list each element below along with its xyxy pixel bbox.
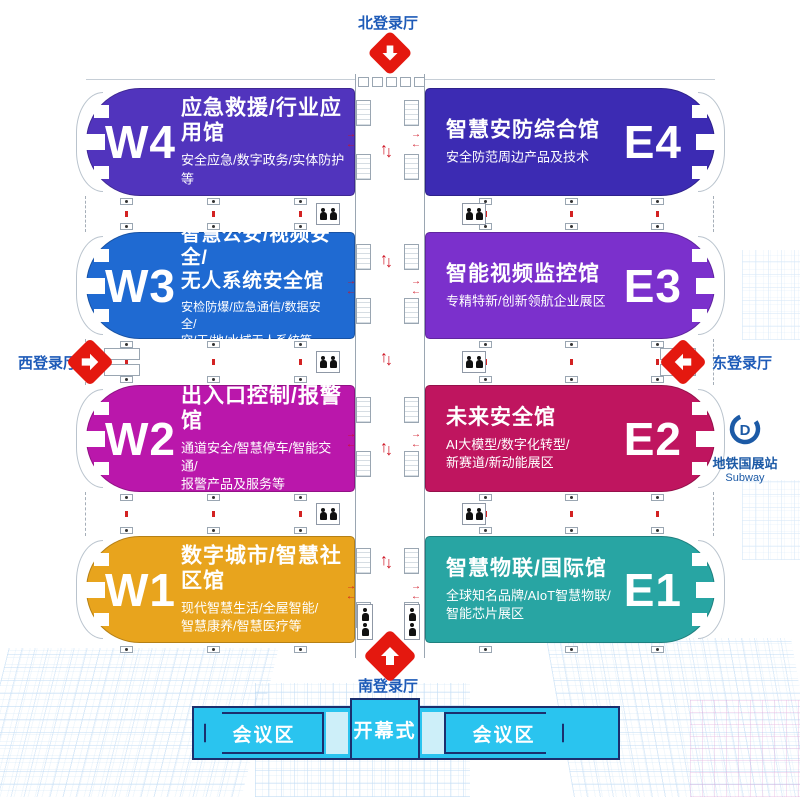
door-icon	[294, 494, 307, 501]
subway-name: 地铁国展站	[706, 453, 784, 472]
north-wall	[86, 79, 355, 88]
city-pattern-decoration	[742, 480, 800, 560]
restroom-icon	[316, 503, 340, 525]
person-icon	[466, 208, 473, 221]
marker-icon	[299, 359, 302, 365]
door-icon	[565, 527, 578, 534]
hall-title: 智慧物联/国际馆	[446, 556, 614, 581]
marker-icon	[299, 211, 302, 217]
hall-desc: 全球知名品牌/AIoT智慧物联/ 智能芯片展区	[446, 587, 614, 623]
person-icon	[476, 208, 483, 221]
hall-W4: W4 应急救援/行业应用馆 安全应急/数字政务/实体防护等	[86, 88, 355, 196]
person-icon	[320, 508, 327, 521]
door-icon	[479, 376, 492, 383]
conference-gap	[422, 712, 444, 754]
door-icon	[294, 198, 307, 205]
stairs-icon	[404, 100, 419, 126]
door-icon	[207, 376, 220, 383]
opening-ceremony-area: 开幕式	[350, 698, 420, 760]
subway-name-en: Subway	[706, 472, 784, 484]
hall-E2: E2 未来安全馆 AI大模型/数字化转型/ 新赛道/新动能展区	[425, 385, 715, 492]
door-notch	[84, 431, 105, 447]
marker-icon	[656, 359, 659, 365]
door-notch	[692, 402, 707, 415]
stairs-icon	[356, 100, 371, 126]
door-icon	[294, 527, 307, 534]
person-icon	[409, 608, 416, 621]
leftright-flow-icon: →←	[411, 277, 420, 297]
person-icon	[330, 208, 337, 221]
door-icon	[565, 341, 578, 348]
building-outline	[713, 492, 714, 536]
hall-code: W1	[105, 563, 176, 617]
person-icon	[320, 356, 327, 369]
conference-area-right: 会议区	[444, 712, 564, 754]
door-notch	[84, 134, 105, 150]
north-wall	[425, 79, 715, 88]
hall-title: 未来安全馆	[446, 405, 614, 430]
leftright-flow-icon: →←	[346, 130, 355, 150]
door-icon	[207, 341, 220, 348]
stairs-icon	[356, 397, 371, 423]
east-entrance-label: 东登录厅	[712, 352, 772, 373]
hall-W2: W2 出入口控制/报警馆 通道安全/智慧停车/智能交通/ 报警产品及服务等	[86, 385, 355, 492]
person-icon	[466, 356, 473, 369]
building-outline	[713, 196, 714, 232]
door-notch	[696, 582, 717, 598]
marker-icon	[656, 211, 659, 217]
hall-code: E3	[624, 259, 682, 313]
person-icon	[330, 508, 337, 521]
hall-code: E2	[624, 412, 682, 466]
door-notch	[84, 278, 105, 294]
restroom-icon	[404, 604, 420, 640]
door-icon	[207, 198, 220, 205]
person-icon	[320, 208, 327, 221]
restroom-icon	[462, 351, 486, 373]
stairs-icon	[356, 298, 371, 324]
hall-E3: E3 智能视频监控馆 专精特新/创新领航企业展区	[425, 232, 715, 339]
door-icon	[120, 527, 133, 534]
door-icon	[651, 527, 664, 534]
wall-structure	[358, 77, 369, 87]
hall-E4: E4 智慧安防综合馆 安全防范周边产品及技术	[425, 88, 715, 196]
stairs-icon	[404, 154, 419, 180]
west-entrance-icon	[66, 338, 114, 386]
leftright-flow-icon: →←	[411, 582, 420, 602]
hall-title: 应急救援/行业应用馆	[181, 96, 346, 146]
door-icon	[120, 494, 133, 501]
hall-title: 数字城市/智慧社区馆	[181, 543, 346, 593]
door-icon	[479, 494, 492, 501]
updown-flow-icon: ↑↓	[380, 350, 390, 366]
marker-icon	[570, 511, 573, 517]
hall-W1: W1 数字城市/智慧社区馆 现代智慧生活/全屋智能/ 智慧康养/智慧医疗等	[86, 536, 355, 643]
hall-desc: 专精特新/创新领航企业展区	[446, 292, 614, 310]
leftright-flow-icon: →←	[346, 582, 355, 602]
door-icon	[294, 376, 307, 383]
hall-W3: W3 智慧公安/视频安全/ 无人系统安全馆 安检防爆/应急通信/数据安全/ 空/…	[86, 232, 355, 339]
door-icon	[565, 198, 578, 205]
hall-title: 智能视频监控馆	[446, 261, 614, 286]
person-icon	[476, 508, 483, 521]
stairs-icon	[356, 154, 371, 180]
person-icon	[466, 508, 473, 521]
door-icon	[651, 494, 664, 501]
hall-title: 智慧安防综合馆	[446, 117, 614, 142]
door-notch	[84, 582, 105, 598]
door-icon	[294, 341, 307, 348]
marker-icon	[656, 511, 659, 517]
person-icon	[476, 356, 483, 369]
door-icon	[479, 646, 492, 653]
door-icon	[294, 646, 307, 653]
door-icon	[565, 223, 578, 230]
stairs-icon	[404, 244, 419, 270]
stairs-icon	[356, 451, 371, 477]
north-entrance-icon	[367, 30, 412, 75]
door-icon	[479, 527, 492, 534]
door-icon	[120, 198, 133, 205]
hall-title: 出入口控制/报警馆	[181, 383, 346, 433]
marker-icon	[125, 211, 128, 217]
door-icon	[651, 646, 664, 653]
restroom-icon	[316, 203, 340, 225]
door-icon	[120, 341, 133, 348]
person-icon	[330, 356, 337, 369]
stairs-icon	[404, 397, 419, 423]
wall-structure	[400, 77, 411, 87]
door-icon	[207, 646, 220, 653]
leftright-flow-icon: →←	[411, 130, 420, 150]
door-icon	[479, 341, 492, 348]
door-notch	[692, 309, 707, 322]
marker-icon	[299, 511, 302, 517]
right-arrow-icon	[79, 351, 101, 373]
stairs-icon	[404, 451, 419, 477]
hall-desc: 现代智慧生活/全屋智能/ 智慧康养/智慧医疗等	[181, 600, 346, 636]
door-icon	[120, 646, 133, 653]
person-icon	[362, 608, 369, 621]
marker-icon	[570, 211, 573, 217]
door-notch	[696, 134, 717, 150]
door-icon	[565, 376, 578, 383]
updown-flow-icon: ↑↓	[380, 252, 390, 268]
up-arrow-icon	[378, 644, 402, 668]
person-icon	[362, 623, 369, 636]
door-notch	[692, 166, 707, 179]
leftright-flow-icon: →←	[411, 430, 420, 450]
hall-desc: 安检防爆/应急通信/数据安全/ 空/天/地/水域无人系统等	[181, 298, 334, 349]
marker-icon	[125, 511, 128, 517]
door-icon	[565, 646, 578, 653]
wall-structure	[386, 77, 397, 87]
hall-code: W4	[105, 115, 176, 169]
door-notch	[692, 553, 707, 566]
door-notch	[692, 462, 707, 475]
building-outline	[85, 492, 86, 536]
door-icon	[207, 494, 220, 501]
hall-code: W2	[105, 412, 176, 466]
wall-structure	[414, 77, 425, 87]
expo-floorplan: W4 应急救援/行业应用馆 安全应急/数字政务/实体防护等 E4 智慧安防综合馆…	[0, 0, 800, 797]
door-notch	[692, 613, 707, 626]
city-pattern-decoration	[690, 700, 800, 797]
restroom-icon	[462, 503, 486, 525]
leftright-flow-icon: →←	[346, 430, 355, 450]
door-notch	[692, 105, 707, 118]
updown-flow-icon: ↑↓	[380, 553, 390, 569]
door-icon	[207, 527, 220, 534]
door-notch	[696, 278, 717, 294]
conference-gap	[326, 712, 348, 754]
stairs-icon	[404, 298, 419, 324]
door-icon	[294, 223, 307, 230]
hall-desc: 安全防范周边产品及技术	[446, 149, 614, 167]
hall-code: E4	[624, 115, 682, 169]
door-icon	[651, 376, 664, 383]
restroom-icon	[462, 203, 486, 225]
stairs-icon	[404, 548, 419, 574]
hall-desc: 安全应急/数字政务/实体防护等	[181, 152, 346, 188]
marker-icon	[212, 359, 215, 365]
building-outline	[85, 196, 86, 232]
subway-logo-icon: D	[728, 412, 762, 446]
door-notch	[692, 249, 707, 262]
svg-text:D: D	[740, 422, 751, 439]
person-icon	[409, 623, 416, 636]
door-icon	[651, 198, 664, 205]
stairs-icon	[356, 548, 371, 574]
hall-desc: AI大模型/数字化转型/ 新赛道/新动能展区	[446, 436, 614, 472]
east-entrance-icon	[659, 338, 707, 386]
door-icon	[207, 223, 220, 230]
updown-flow-icon: ↑↓	[380, 142, 390, 158]
left-arrow-icon	[672, 351, 694, 373]
north-entrance-label: 北登录厅	[358, 12, 418, 33]
marker-icon	[570, 359, 573, 365]
door-icon	[651, 341, 664, 348]
marker-icon	[212, 511, 215, 517]
wall-structure	[372, 77, 383, 87]
conference-area-left: 会议区	[204, 712, 324, 754]
hall-desc: 通道安全/智慧停车/智能交通/ 报警产品及服务等	[181, 439, 346, 494]
restroom-icon	[316, 351, 340, 373]
down-arrow-icon	[380, 43, 400, 63]
hall-code: E1	[624, 563, 682, 617]
hall-E1: E1 智慧物联/国际馆 全球知名品牌/AIoT智慧物联/ 智能芯片展区	[425, 536, 715, 643]
door-icon	[120, 376, 133, 383]
updown-flow-icon: ↑↓	[380, 440, 390, 456]
city-pattern-decoration	[742, 250, 800, 340]
hall-code: W3	[105, 259, 176, 313]
restroom-icon	[357, 604, 373, 640]
door-icon	[565, 494, 578, 501]
marker-icon	[212, 211, 215, 217]
subway-station: D 地铁国展站 Subway	[706, 412, 784, 484]
leftright-flow-icon: →←	[346, 277, 355, 297]
stairs-icon	[356, 244, 371, 270]
hall-title: 智慧公安/视频安全/ 无人系统安全馆	[181, 222, 334, 292]
door-icon	[651, 223, 664, 230]
door-icon	[120, 223, 133, 230]
